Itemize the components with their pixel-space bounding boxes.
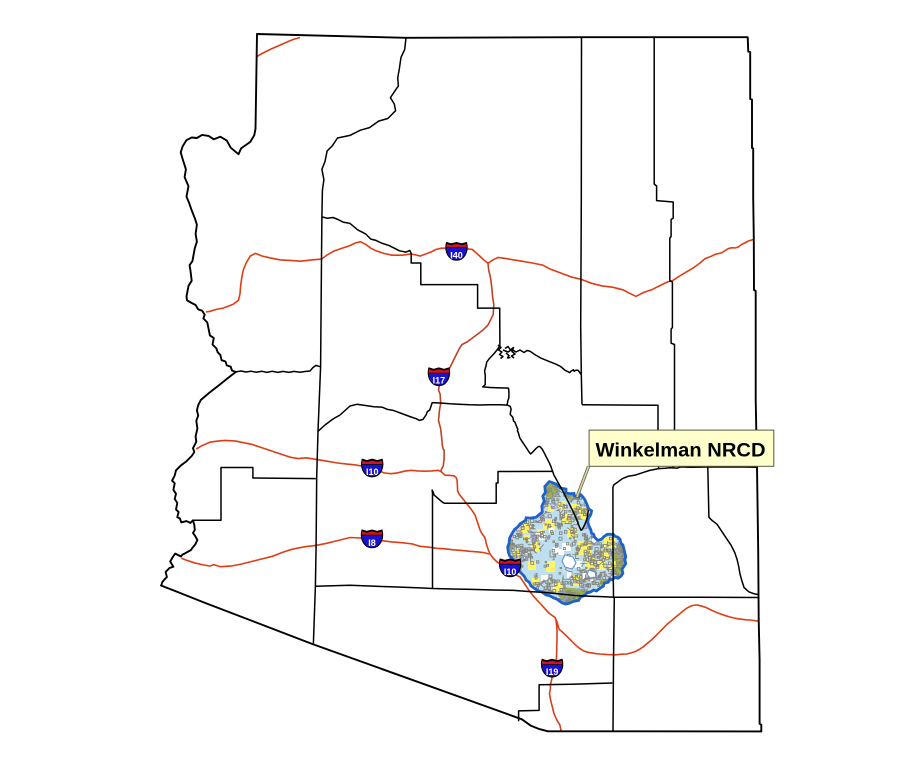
svg-text:I40: I40 (450, 250, 463, 260)
svg-text:I19: I19 (546, 667, 559, 677)
svg-text:I17: I17 (433, 376, 446, 386)
svg-text:Winkelman NRCD: Winkelman NRCD (596, 440, 766, 462)
svg-text:I10: I10 (366, 467, 379, 477)
svg-text:I8: I8 (368, 538, 376, 548)
svg-text:I10: I10 (504, 567, 517, 577)
